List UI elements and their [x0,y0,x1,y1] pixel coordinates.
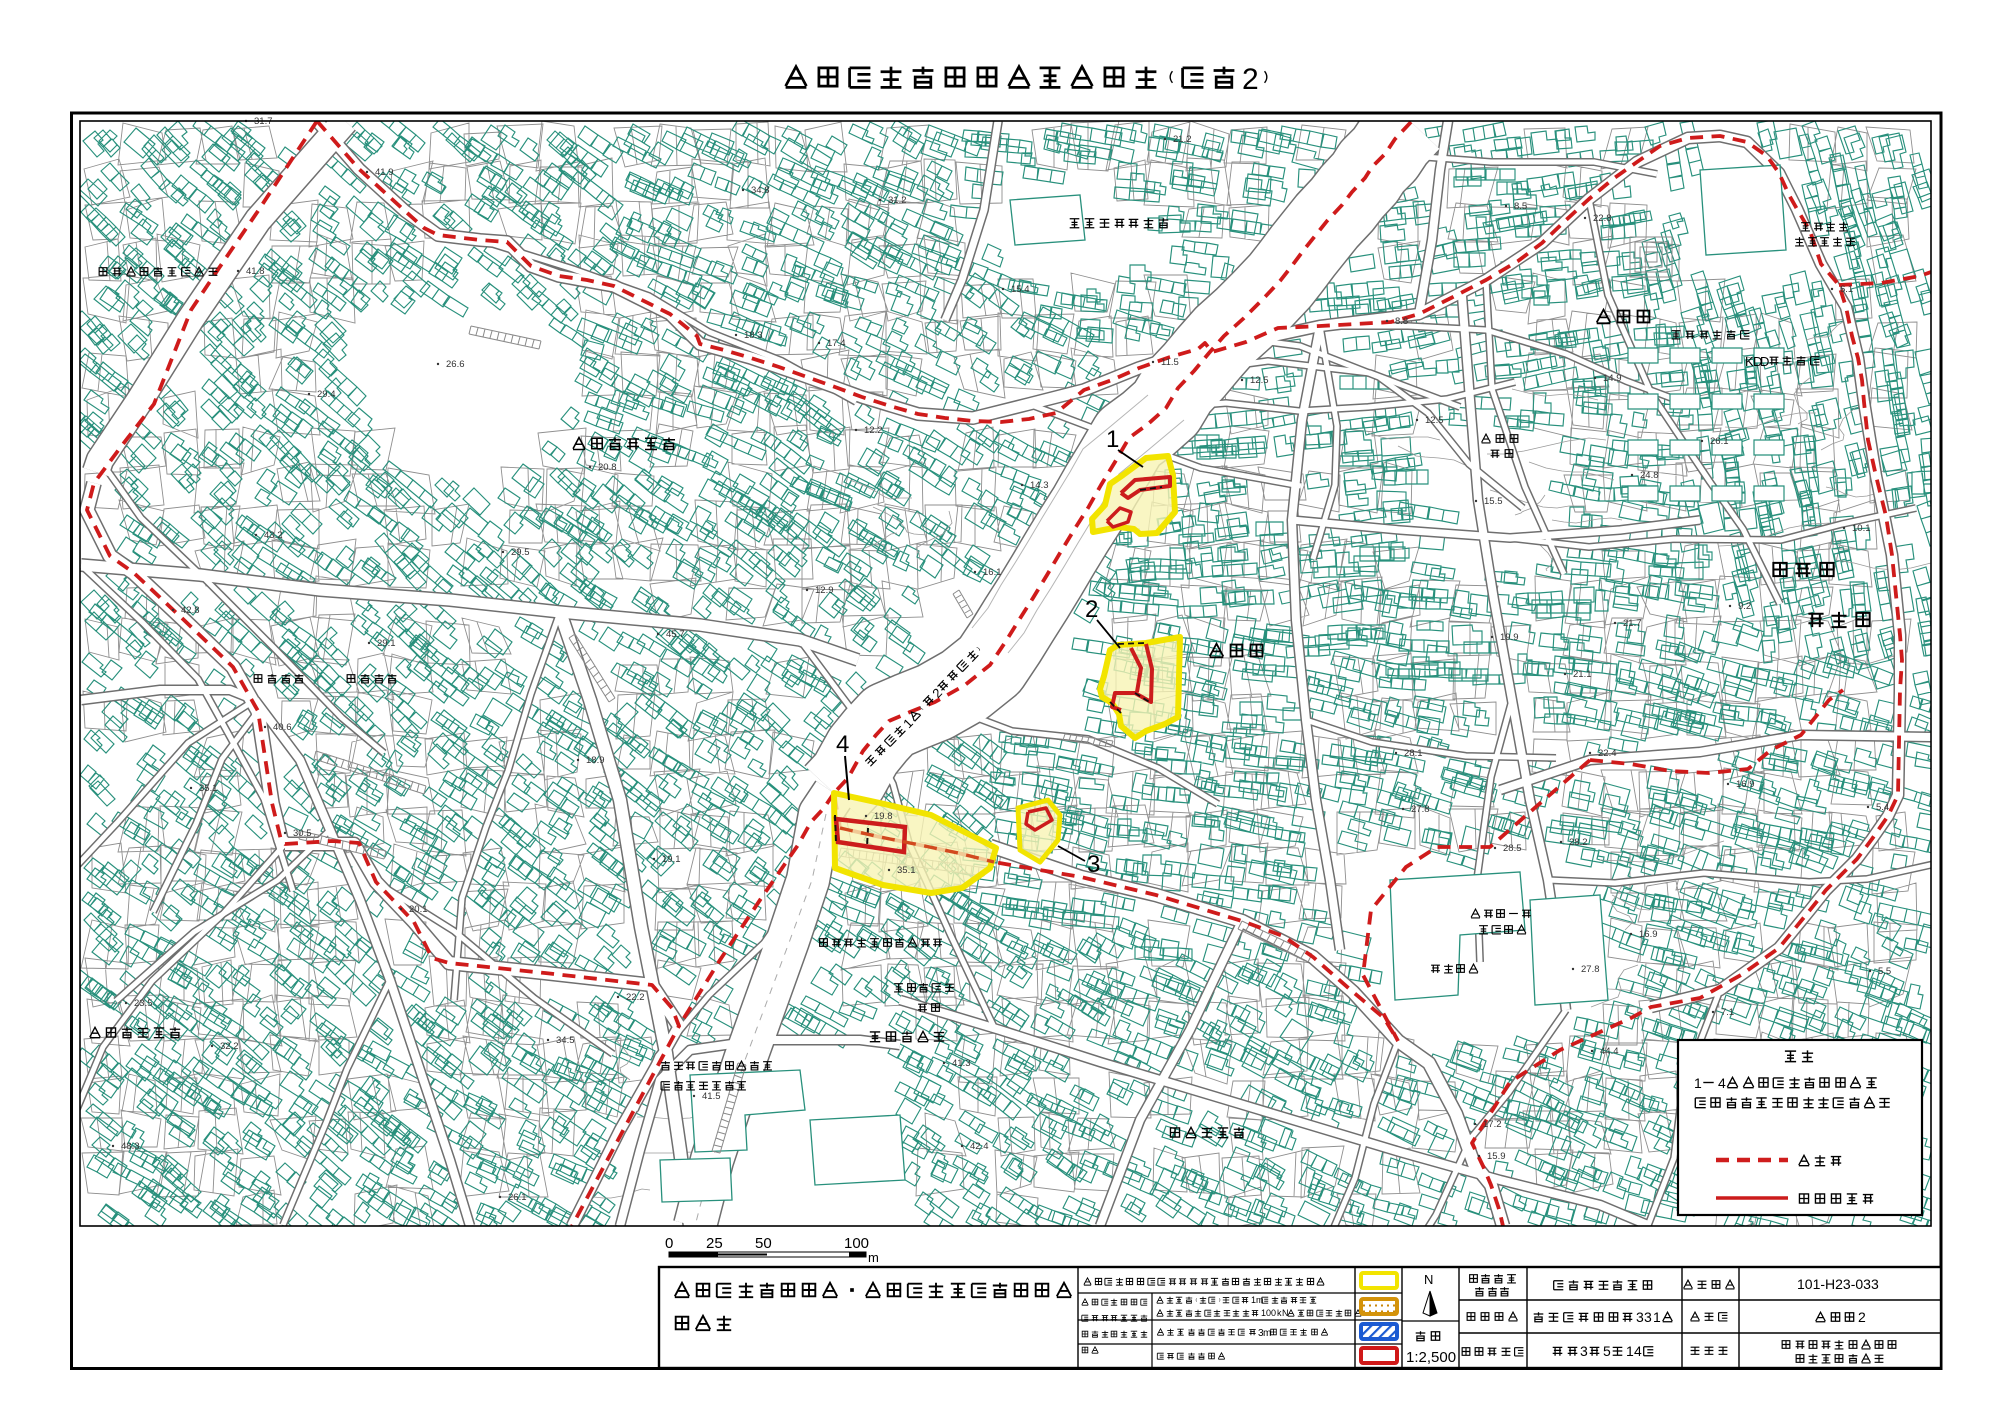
svg-text:14.3: 14.3 [1030,480,1049,491]
svg-text:42.8: 42.8 [181,605,200,616]
svg-text:24.8: 24.8 [1640,470,1659,481]
svg-text:1: 1 [1653,1309,1661,1325]
svg-text:35.1: 35.1 [897,865,916,876]
svg-text:5.5: 5.5 [1878,966,1891,977]
svg-text:101-H23-033: 101-H23-033 [1797,1276,1879,1292]
svg-text:18.3: 18.3 [744,330,763,341]
svg-text:21.1: 21.1 [1573,669,1592,680]
svg-text:4: 4 [836,731,849,758]
svg-text:21.2: 21.2 [1173,134,1192,145]
svg-text:22.4: 22.4 [1598,748,1617,759]
svg-text:4: 4 [1634,1343,1642,1359]
svg-text:1: 1 [1106,426,1119,453]
svg-text:25: 25 [706,1235,723,1252]
svg-text:5.4: 5.4 [1876,802,1889,813]
svg-text:5: 5 [1603,1343,1611,1359]
svg-text:40.6: 40.6 [273,722,292,733]
svg-text:45.7: 45.7 [666,629,685,640]
svg-text:8.8: 8.8 [1395,316,1408,327]
svg-text:17.2: 17.2 [1483,1119,1502,1130]
svg-text:41.8: 41.8 [246,266,265,277]
svg-text:32.2: 32.2 [220,1041,239,1052]
svg-text:0: 0 [665,1235,673,1252]
svg-text:16.1: 16.1 [983,567,1002,578]
svg-text:29.5: 29.5 [511,547,530,558]
svg-text:19.1: 19.1 [662,854,681,865]
svg-text:D: D [1760,354,1769,369]
svg-text:15.5: 15.5 [1484,496,1503,507]
svg-text:22.8: 22.8 [1593,213,1612,224]
svg-text:1: 1 [1626,1343,1634,1359]
svg-text:29.4: 29.4 [317,389,336,400]
svg-text:11.5: 11.5 [1161,357,1179,368]
svg-text:23.5: 23.5 [134,998,153,1009]
svg-text:35.1: 35.1 [199,783,218,794]
svg-text:m: m [868,1250,879,1265]
svg-text:N: N [1282,1308,1289,1318]
svg-text:20.1: 20.1 [409,904,428,915]
svg-text:28.2: 28.2 [1569,837,1588,848]
svg-text:21.7: 21.7 [1623,618,1642,629]
svg-text:42.4: 42.4 [970,1141,989,1152]
svg-text:41.5: 41.5 [702,1091,721,1102]
svg-text:22.2: 22.2 [626,992,645,1003]
svg-text:3: 3 [1087,851,1100,878]
svg-text:44.4: 44.4 [1600,1046,1619,1057]
svg-text:26.1: 26.1 [1710,436,1729,447]
svg-text:15.9: 15.9 [1487,1151,1506,1162]
svg-text:2: 2 [1085,596,1098,623]
svg-text:3: 3 [1644,1309,1652,1325]
svg-text:m: m [1263,1328,1271,1339]
svg-text:16.9: 16.9 [1639,929,1658,940]
svg-text:43.2: 43.2 [264,530,283,541]
svg-text:100: 100 [844,1235,869,1252]
svg-text:2: 2 [1242,63,1259,96]
svg-text:1: 1 [1694,1075,1702,1091]
svg-text:17.4: 17.4 [827,338,846,349]
svg-text:16.9: 16.9 [1736,779,1755,790]
svg-text:10.1: 10.1 [1852,523,1871,534]
svg-text:28.5: 28.5 [1503,843,1522,854]
svg-text:3: 3 [1636,1309,1644,1325]
svg-text:41.9: 41.9 [375,167,394,178]
svg-text:4: 4 [1718,1075,1726,1091]
svg-text:19.9: 19.9 [1500,632,1519,643]
svg-text:9.2: 9.2 [1738,601,1751,612]
svg-text:18.9: 18.9 [586,755,605,766]
svg-text:12.5: 12.5 [1425,415,1444,426]
svg-text:8.5: 8.5 [1514,201,1527,212]
svg-text:15.4: 15.4 [1011,284,1030,295]
svg-text:6.1: 6.1 [1840,284,1853,295]
svg-text:19.8: 19.8 [874,811,893,822]
svg-text:26.6: 26.6 [446,359,465,370]
svg-text:12.5: 12.5 [1250,375,1269,386]
svg-text:29.1: 29.1 [377,638,396,649]
svg-text:3: 3 [1580,1343,1588,1359]
svg-text:14.9: 14.9 [1603,373,1622,384]
svg-text:7.1: 7.1 [1721,1007,1734,1018]
svg-text:1:2,500: 1:2,500 [1406,1349,1456,1366]
svg-text:34.5: 34.5 [556,1035,575,1046]
svg-text:N: N [1424,1272,1433,1287]
svg-text:31.2: 31.2 [888,195,907,206]
svg-text:12.9: 12.9 [815,585,834,596]
svg-text:30.5: 30.5 [293,828,312,839]
svg-text:50: 50 [755,1235,772,1252]
svg-text:28.1: 28.1 [1404,748,1423,759]
svg-text:34.8: 34.8 [751,185,770,196]
svg-text:27.8: 27.8 [1581,964,1600,975]
svg-text:27.8: 27.8 [1411,804,1430,815]
svg-text:41.3: 41.3 [952,1058,971,1069]
svg-text:12.2: 12.2 [864,425,883,436]
svg-text:2: 2 [1858,1309,1866,1325]
svg-text:0: 0 [1271,1308,1276,1318]
svg-text:20.8: 20.8 [598,462,617,473]
svg-text:48.3: 48.3 [121,1141,140,1152]
svg-text:26.1: 26.1 [508,1192,527,1203]
